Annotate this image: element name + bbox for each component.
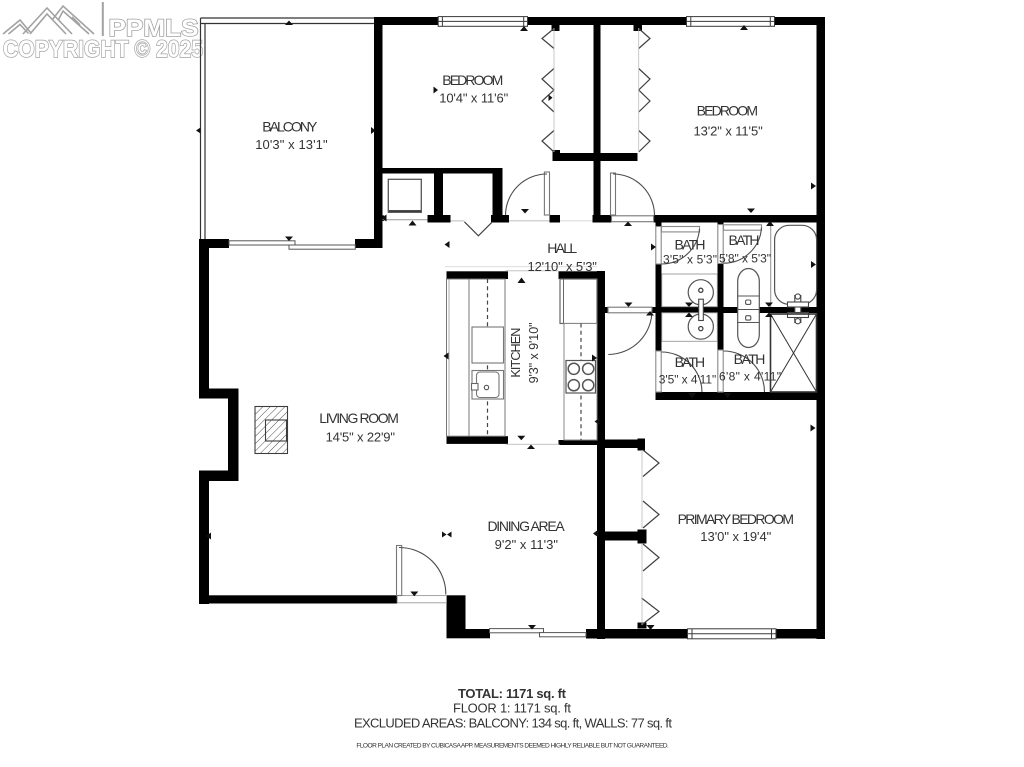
svg-text:10'4" x 11'6": 10'4" x 11'6" [439, 91, 508, 106]
svg-text:3'5" x 4'11": 3'5" x 4'11" [659, 373, 717, 387]
svg-text:BALCONY: BALCONY [262, 119, 318, 135]
svg-text:BEDROOM: BEDROOM [442, 72, 503, 88]
svg-text:FLOOR 1: 1171 sq. ft: FLOOR 1: 1171 sq. ft [453, 701, 571, 716]
svg-text:KITCHEN: KITCHEN [509, 328, 523, 378]
svg-text:12'10" x 5'3": 12'10" x 5'3" [528, 259, 598, 274]
svg-text:BATH: BATH [734, 351, 766, 367]
svg-text:BATH: BATH [675, 237, 706, 253]
svg-text:14'5" x 22'9": 14'5" x 22'9" [326, 430, 396, 445]
svg-text:10'3" x 13'1": 10'3" x 13'1" [255, 137, 328, 152]
svg-text:PRIMARY BEDROOM: PRIMARY BEDROOM [678, 511, 794, 527]
svg-text:9'3" x 9'10": 9'3" x 9'10" [527, 322, 541, 383]
svg-text:13'2" x 11'5": 13'2" x 11'5" [694, 124, 764, 139]
svg-text:LIVING ROOM: LIVING ROOM [319, 410, 399, 426]
svg-text:BATH: BATH [675, 354, 706, 370]
svg-text:FLOOR PLAN CREATED BY CUBICASA: FLOOR PLAN CREATED BY CUBICASA APP. MEAS… [356, 742, 669, 749]
svg-text:BEDROOM: BEDROOM [697, 103, 758, 119]
svg-text:DINING AREA: DINING AREA [488, 518, 566, 534]
svg-text:13'0" x 19'4": 13'0" x 19'4" [700, 529, 771, 544]
svg-text:HALL: HALL [547, 240, 577, 256]
svg-text:9'2" x 11'3": 9'2" x 11'3" [495, 537, 559, 552]
svg-text:TOTAL: 1171 sq. ft: TOTAL: 1171 sq. ft [458, 686, 567, 701]
svg-text:5'8" x 5'3": 5'8" x 5'3" [719, 252, 771, 266]
svg-text:6'8" x 4'11": 6'8" x 4'11" [719, 370, 781, 384]
svg-text:BATH: BATH [729, 232, 760, 248]
svg-text:EXCLUDED AREAS: BALCONY: 134 s: EXCLUDED AREAS: BALCONY: 134 sq. ft, WAL… [354, 716, 672, 731]
svg-text:3'5" x 5'3": 3'5" x 5'3" [663, 253, 717, 267]
svg-text:COPYRIGHT © 2025: COPYRIGHT © 2025 [3, 36, 203, 63]
